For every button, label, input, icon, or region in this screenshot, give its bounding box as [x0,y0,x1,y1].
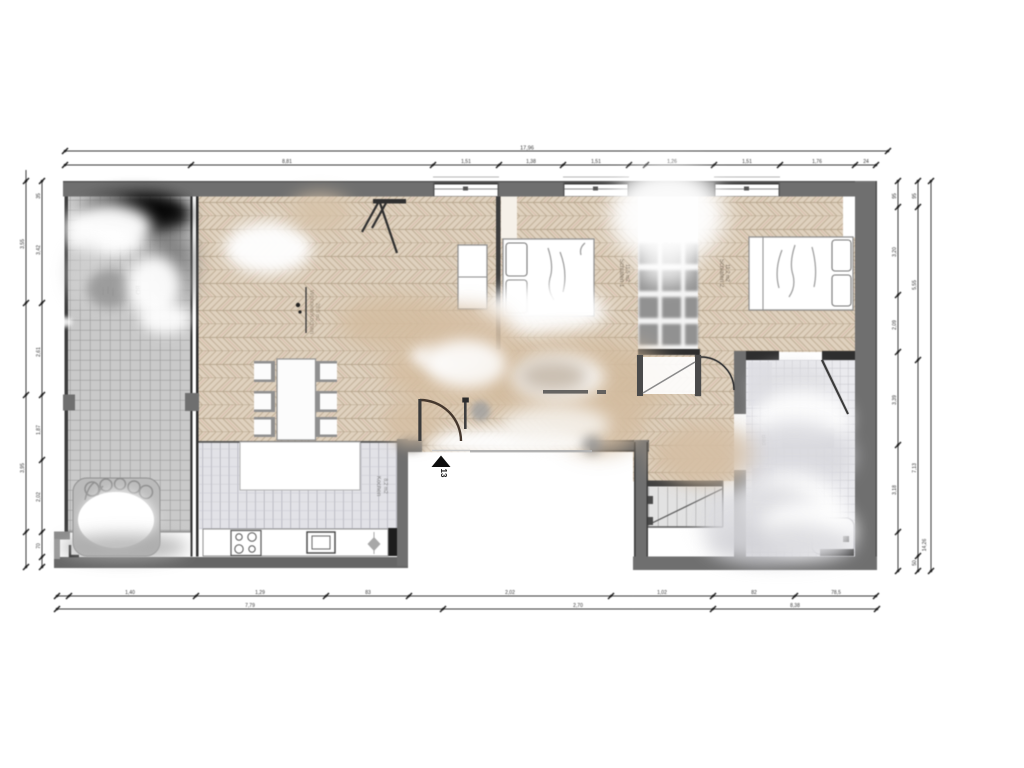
svg-text:13: 13 [439,469,448,478]
